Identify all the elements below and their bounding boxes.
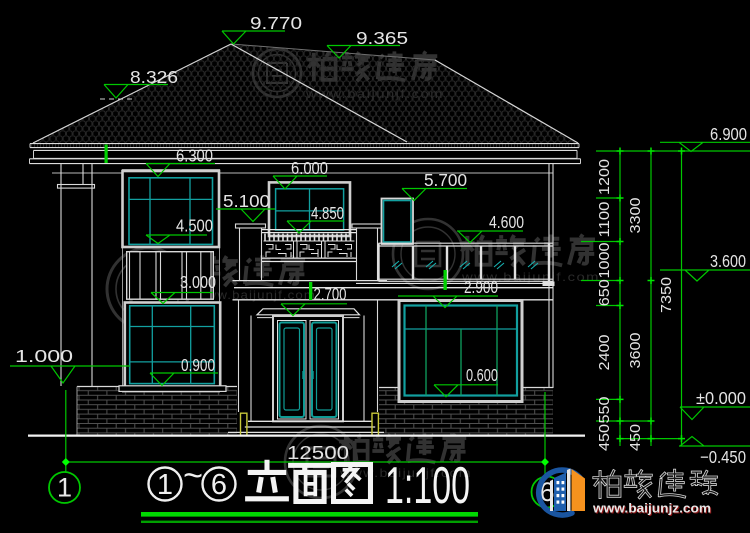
svg-text:7350: 7350 <box>658 277 675 313</box>
svg-text:6.300: 6.300 <box>176 146 213 166</box>
svg-text:1: 1 <box>157 469 173 501</box>
svg-text:3600: 3600 <box>627 333 644 369</box>
svg-text:0.900: 0.900 <box>181 355 215 375</box>
svg-text:2.900: 2.900 <box>464 277 498 297</box>
svg-text:1:100: 1:100 <box>385 457 470 515</box>
svg-text:4.500: 4.500 <box>176 216 213 236</box>
svg-text:3.000: 3.000 <box>180 272 216 292</box>
svg-text:1200: 1200 <box>596 159 613 195</box>
svg-text:5.700: 5.700 <box>424 170 467 190</box>
svg-text:0.600: 0.600 <box>466 365 498 385</box>
svg-text:−0.450: −0.450 <box>700 447 746 467</box>
svg-text:6.000: 6.000 <box>291 158 328 178</box>
svg-text:650: 650 <box>596 279 613 306</box>
svg-text:3300: 3300 <box>627 198 644 234</box>
svg-text:12500: 12500 <box>287 443 349 463</box>
svg-text:450: 450 <box>627 424 644 451</box>
svg-text:1000: 1000 <box>596 243 613 279</box>
svg-text:1100: 1100 <box>596 202 613 238</box>
svg-text:9.365: 9.365 <box>356 28 408 48</box>
svg-text:5.100: 5.100 <box>223 191 270 211</box>
svg-text:4.850: 4.850 <box>311 203 344 223</box>
svg-text:1: 1 <box>57 473 72 503</box>
svg-text:8.326: 8.326 <box>130 67 178 87</box>
svg-text:450: 450 <box>596 424 613 451</box>
svg-text:3.600: 3.600 <box>710 251 746 271</box>
svg-text:2400: 2400 <box>596 335 613 371</box>
svg-text:9.770: 9.770 <box>250 13 302 33</box>
svg-text:4.600: 4.600 <box>489 212 524 232</box>
svg-text:6: 6 <box>211 469 227 501</box>
svg-text:±0.000: ±0.000 <box>696 388 746 408</box>
svg-text:2.700: 2.700 <box>314 284 347 304</box>
svg-text:6.900: 6.900 <box>710 124 747 144</box>
svg-text:~: ~ <box>183 457 203 495</box>
svg-text:1.000: 1.000 <box>15 346 73 366</box>
svg-text:www.baijunjz.com: www.baijunjz.com <box>592 502 711 516</box>
svg-text:550: 550 <box>596 397 613 424</box>
